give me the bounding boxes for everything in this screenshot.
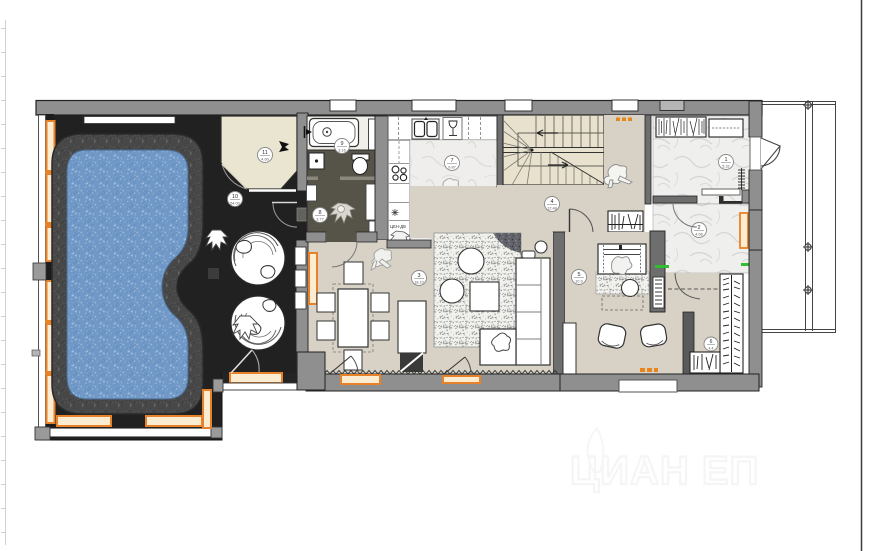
svg-text:4: 4: [550, 199, 553, 205]
svg-text:4.66: 4.66: [695, 233, 702, 237]
svg-text:9.87: 9.87: [448, 166, 455, 170]
svg-text:18.10: 18.10: [414, 281, 424, 285]
svg-text:54.00: 54.00: [230, 202, 240, 206]
svg-text:6: 6: [710, 339, 713, 345]
svg-text:8: 8: [318, 210, 321, 216]
svg-text:5.32: 5.32: [722, 165, 729, 169]
svg-text:ЦЕН-ДВ: ЦЕН-ДВ: [390, 224, 406, 229]
svg-text:2: 2: [697, 225, 700, 231]
svg-text:5: 5: [577, 272, 580, 278]
svg-text:3.16: 3.16: [338, 149, 345, 153]
svg-text:9: 9: [340, 141, 343, 147]
svg-text:12.48: 12.48: [547, 207, 557, 211]
svg-text:3.77: 3.77: [316, 218, 323, 222]
svg-text:11: 11: [262, 150, 268, 156]
svg-text:10: 10: [232, 194, 238, 200]
svg-text:1: 1: [724, 157, 727, 163]
svg-text:3: 3: [417, 273, 420, 279]
svg-text:10.9: 10.9: [575, 280, 582, 284]
svg-text:4.4: 4.4: [709, 347, 714, 351]
svg-text:4.60: 4.60: [261, 158, 268, 162]
svg-text:7: 7: [450, 158, 453, 164]
